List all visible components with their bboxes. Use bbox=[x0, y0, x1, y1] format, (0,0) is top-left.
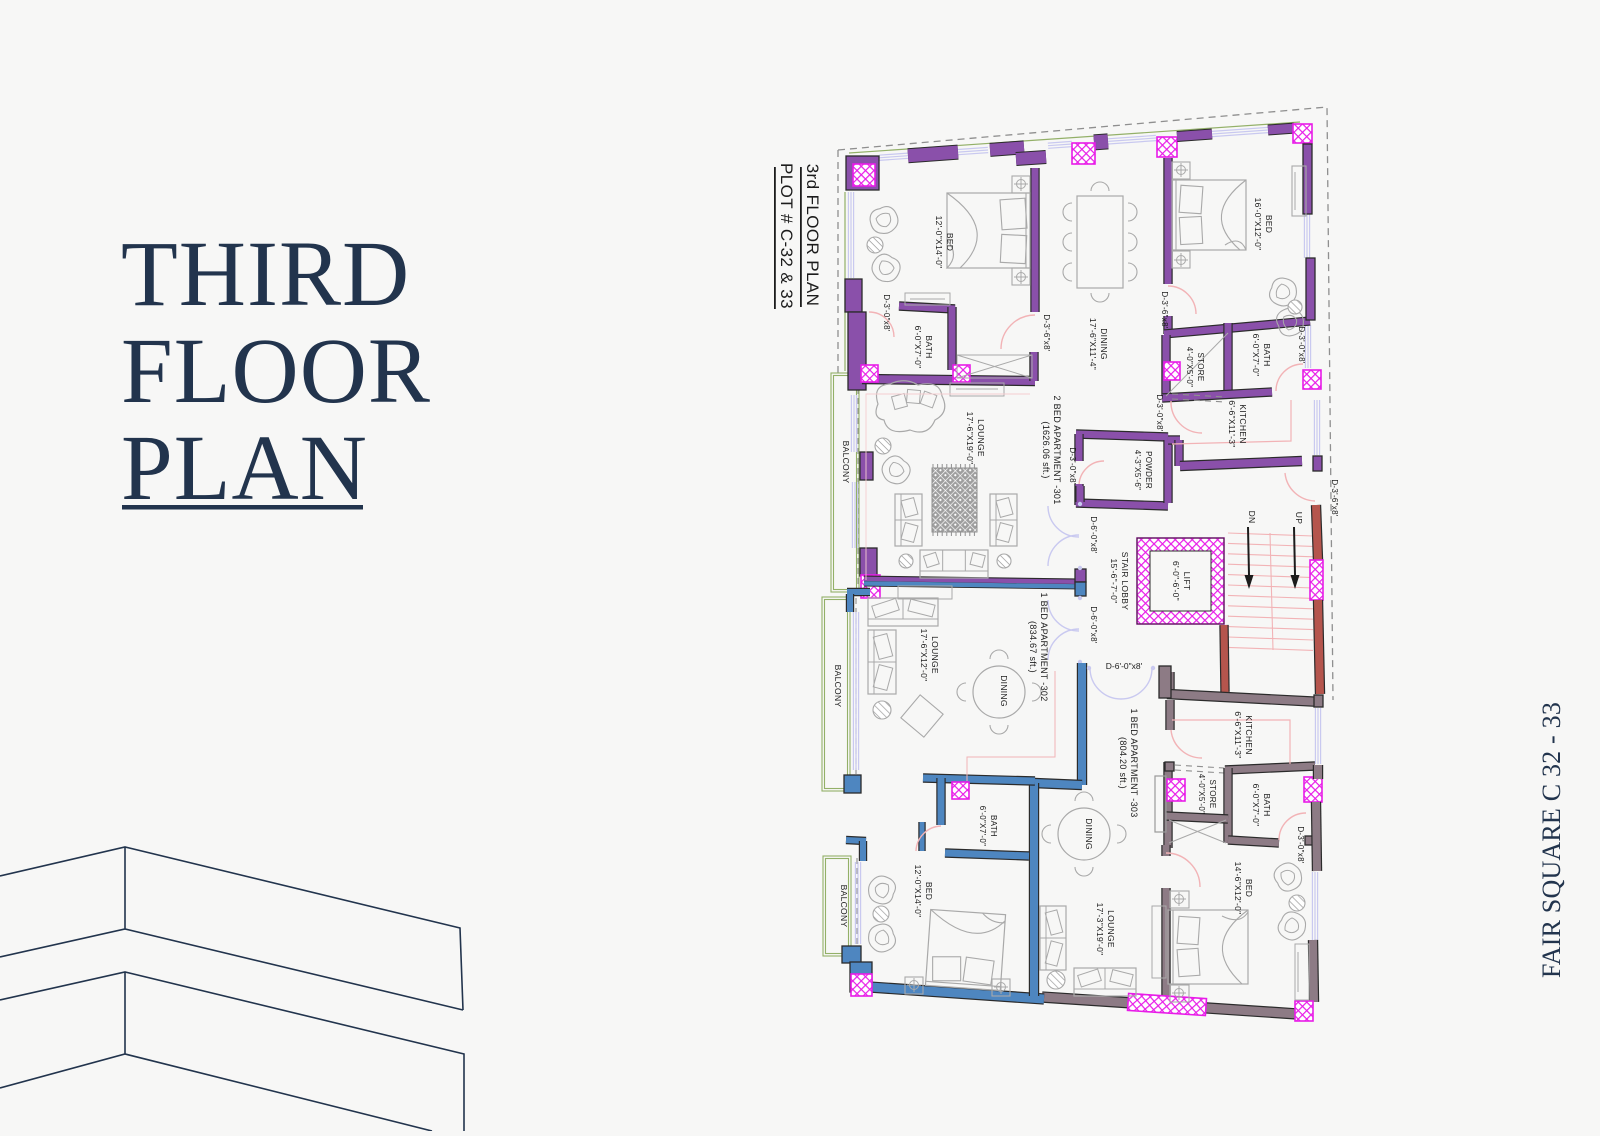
svg-text:(834.67 sft.): (834.67 sft.) bbox=[1028, 621, 1038, 673]
svg-text:D-3'-6"x8': D-3'-6"x8' bbox=[1042, 314, 1051, 352]
svg-text:6'-0"X7'-0": 6'-0"X7'-0" bbox=[978, 806, 987, 847]
svg-text:FLOOR: FLOOR bbox=[121, 320, 431, 423]
svg-text:BED: BED bbox=[1264, 215, 1274, 233]
svg-text:DN: DN bbox=[1247, 511, 1257, 524]
svg-text:THIRD: THIRD bbox=[121, 223, 410, 326]
svg-text:6'-0"X7'-0": 6'-0"X7'-0" bbox=[1251, 334, 1261, 377]
svg-text:D-6'-0"x8': D-6'-0"x8' bbox=[1106, 661, 1143, 671]
svg-text:LOUNGE: LOUNGE bbox=[930, 636, 940, 674]
svg-text:1 BED APARTMENT -303: 1 BED APARTMENT -303 bbox=[1129, 708, 1139, 817]
svg-text:4'-0"X5'-0": 4'-0"X5'-0" bbox=[1197, 774, 1206, 815]
svg-text:15'-6"-7'-0": 15'-6"-7'-0" bbox=[1109, 558, 1119, 603]
svg-text:D-3'-6"x8': D-3'-6"x8' bbox=[1160, 291, 1169, 329]
svg-text:D-3'-0"x8': D-3'-0"x8' bbox=[1155, 394, 1164, 432]
svg-text:LOUNGE: LOUNGE bbox=[976, 419, 986, 457]
svg-text:D-3'-0"x8': D-3'-0"x8' bbox=[1296, 826, 1305, 864]
svg-text:POWDER: POWDER bbox=[1144, 451, 1153, 489]
svg-text:17'-6"X19'-0": 17'-6"X19'-0" bbox=[965, 412, 975, 465]
svg-text:6'-0"-6'-0": 6'-0"-6'-0" bbox=[1171, 561, 1181, 601]
svg-text:FAIR SQUARE C 32 - 33: FAIR SQUARE C 32 - 33 bbox=[1537, 702, 1566, 978]
svg-text:BALCONY: BALCONY bbox=[833, 665, 843, 708]
svg-text:4'-0"X5'-0": 4'-0"X5'-0" bbox=[1185, 347, 1194, 388]
svg-text:17'-6"X12'-0": 17'-6"X12'-0" bbox=[919, 629, 929, 682]
svg-text:4'-3"X5'-6": 4'-3"X5'-6" bbox=[1133, 450, 1142, 491]
svg-text:1 BED APARTMENT -302: 1 BED APARTMENT -302 bbox=[1039, 592, 1049, 701]
svg-text:LOUNGE: LOUNGE bbox=[1106, 910, 1116, 948]
svg-text:6'-6"X11'-3": 6'-6"X11'-3" bbox=[1233, 711, 1243, 758]
svg-text:D-6'-0"x8': D-6'-0"x8' bbox=[1089, 606, 1098, 644]
svg-text:3rd FLOOR PLAN: 3rd FLOOR PLAN bbox=[803, 164, 822, 307]
svg-text:(1626.06 sft.): (1626.06 sft.) bbox=[1041, 421, 1051, 478]
svg-text:BATH: BATH bbox=[924, 335, 934, 358]
svg-text:6'-0"X7'-0": 6'-0"X7'-0" bbox=[1251, 784, 1261, 827]
svg-text:6'-6"X11'-3": 6'-6"X11'-3" bbox=[1227, 400, 1237, 447]
svg-text:16'-0"X12'-0": 16'-0"X12'-0" bbox=[1253, 198, 1263, 251]
svg-text:BED: BED bbox=[945, 233, 955, 251]
svg-text:DINING: DINING bbox=[1099, 328, 1109, 360]
svg-text:PLOT # C-32 & 33: PLOT # C-32 & 33 bbox=[777, 163, 796, 309]
svg-text:12'-0"X14'-0": 12'-0"X14'-0" bbox=[934, 216, 944, 269]
svg-text:BED: BED bbox=[924, 882, 934, 900]
svg-text:DINING: DINING bbox=[1084, 818, 1094, 850]
svg-text:17'-6"X11'-4": 17'-6"X11'-4" bbox=[1088, 318, 1098, 370]
svg-text:DINING: DINING bbox=[999, 675, 1009, 707]
svg-text:D-3'-0"x8': D-3'-0"x8' bbox=[882, 294, 891, 332]
svg-text:KITCHEN: KITCHEN bbox=[1244, 715, 1254, 754]
svg-text:2 BED APARTMENT -301: 2 BED APARTMENT -301 bbox=[1052, 395, 1062, 504]
svg-text:6'-0"X7'-0": 6'-0"X7'-0" bbox=[913, 326, 923, 369]
svg-text:BATH: BATH bbox=[1262, 793, 1272, 816]
svg-text:BALCONY: BALCONY bbox=[839, 885, 849, 928]
svg-text:17'-3"X19'-0": 17'-3"X19'-0" bbox=[1095, 903, 1105, 956]
svg-text:STAIR LOBBY: STAIR LOBBY bbox=[1120, 552, 1130, 610]
svg-text:KITCHEN: KITCHEN bbox=[1238, 404, 1248, 443]
svg-text:D-3'-0"x8': D-3'-0"x8' bbox=[1297, 326, 1306, 364]
svg-text:BED: BED bbox=[1244, 879, 1254, 897]
svg-text:D-6'-0"x8': D-6'-0"x8' bbox=[1089, 516, 1098, 554]
svg-text:(804.20 sft.): (804.20 sft.) bbox=[1118, 737, 1128, 789]
svg-text:PLAN: PLAN bbox=[121, 417, 368, 520]
svg-text:D-3'-0"x8': D-3'-0"x8' bbox=[1068, 447, 1077, 485]
svg-text:D-3'-6"x8': D-3'-6"x8' bbox=[1330, 479, 1339, 517]
svg-text:BATH: BATH bbox=[989, 815, 998, 837]
svg-text:LIFT: LIFT bbox=[1182, 572, 1192, 591]
svg-text:STORE: STORE bbox=[1208, 780, 1217, 809]
svg-text:STORE: STORE bbox=[1196, 353, 1205, 382]
svg-text:BALCONY: BALCONY bbox=[841, 441, 851, 484]
svg-text:12'-0"X14'-0": 12'-0"X14'-0" bbox=[913, 865, 923, 918]
svg-text:UP: UP bbox=[1294, 512, 1304, 524]
svg-text:14'-6"X12'-0": 14'-6"X12'-0" bbox=[1233, 862, 1243, 915]
svg-text:BATH: BATH bbox=[1262, 343, 1272, 366]
